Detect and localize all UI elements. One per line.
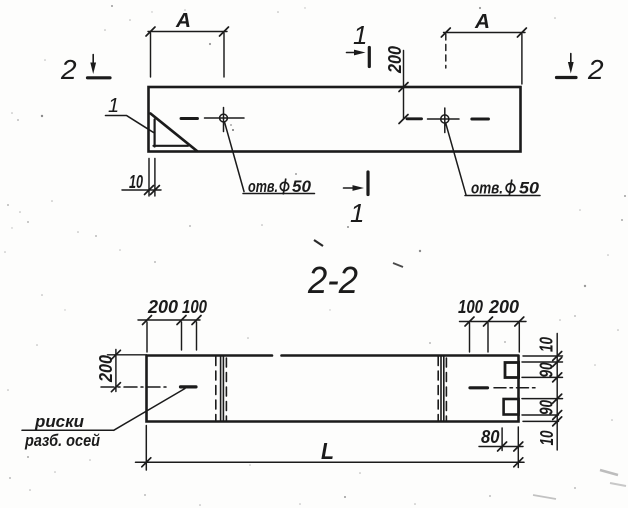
svg-text:разб. осей: разб. осей — [24, 431, 100, 450]
svg-text:90: 90 — [537, 363, 557, 378]
svg-text:10: 10 — [129, 172, 143, 192]
svg-text:100: 100 — [458, 297, 483, 317]
svg-text:200: 200 — [96, 355, 116, 383]
svg-text:200: 200 — [147, 297, 178, 317]
svg-text:2: 2 — [587, 54, 604, 85]
svg-text:80: 80 — [481, 427, 500, 447]
svg-text:1: 1 — [350, 198, 364, 228]
svg-text:1: 1 — [108, 95, 119, 117]
svg-text:200: 200 — [488, 297, 519, 317]
svg-text:90: 90 — [537, 400, 557, 415]
svg-text:2: 2 — [60, 54, 77, 85]
svg-text:100: 100 — [182, 297, 207, 317]
svg-text:50: 50 — [292, 177, 312, 196]
svg-text:L: L — [321, 438, 334, 464]
svg-text:1: 1 — [353, 20, 367, 50]
svg-text:A: A — [474, 11, 490, 33]
svg-text:A: A — [175, 10, 191, 32]
svg-text:10: 10 — [537, 431, 557, 446]
svg-text:200: 200 — [385, 46, 405, 74]
svg-text:риски: риски — [34, 412, 85, 431]
svg-text:отв.: отв. — [248, 177, 278, 196]
svg-text:2-2: 2-2 — [307, 260, 358, 302]
svg-text:50: 50 — [519, 179, 540, 198]
svg-text:10: 10 — [537, 337, 557, 352]
svg-text:отв.: отв. — [471, 179, 503, 198]
